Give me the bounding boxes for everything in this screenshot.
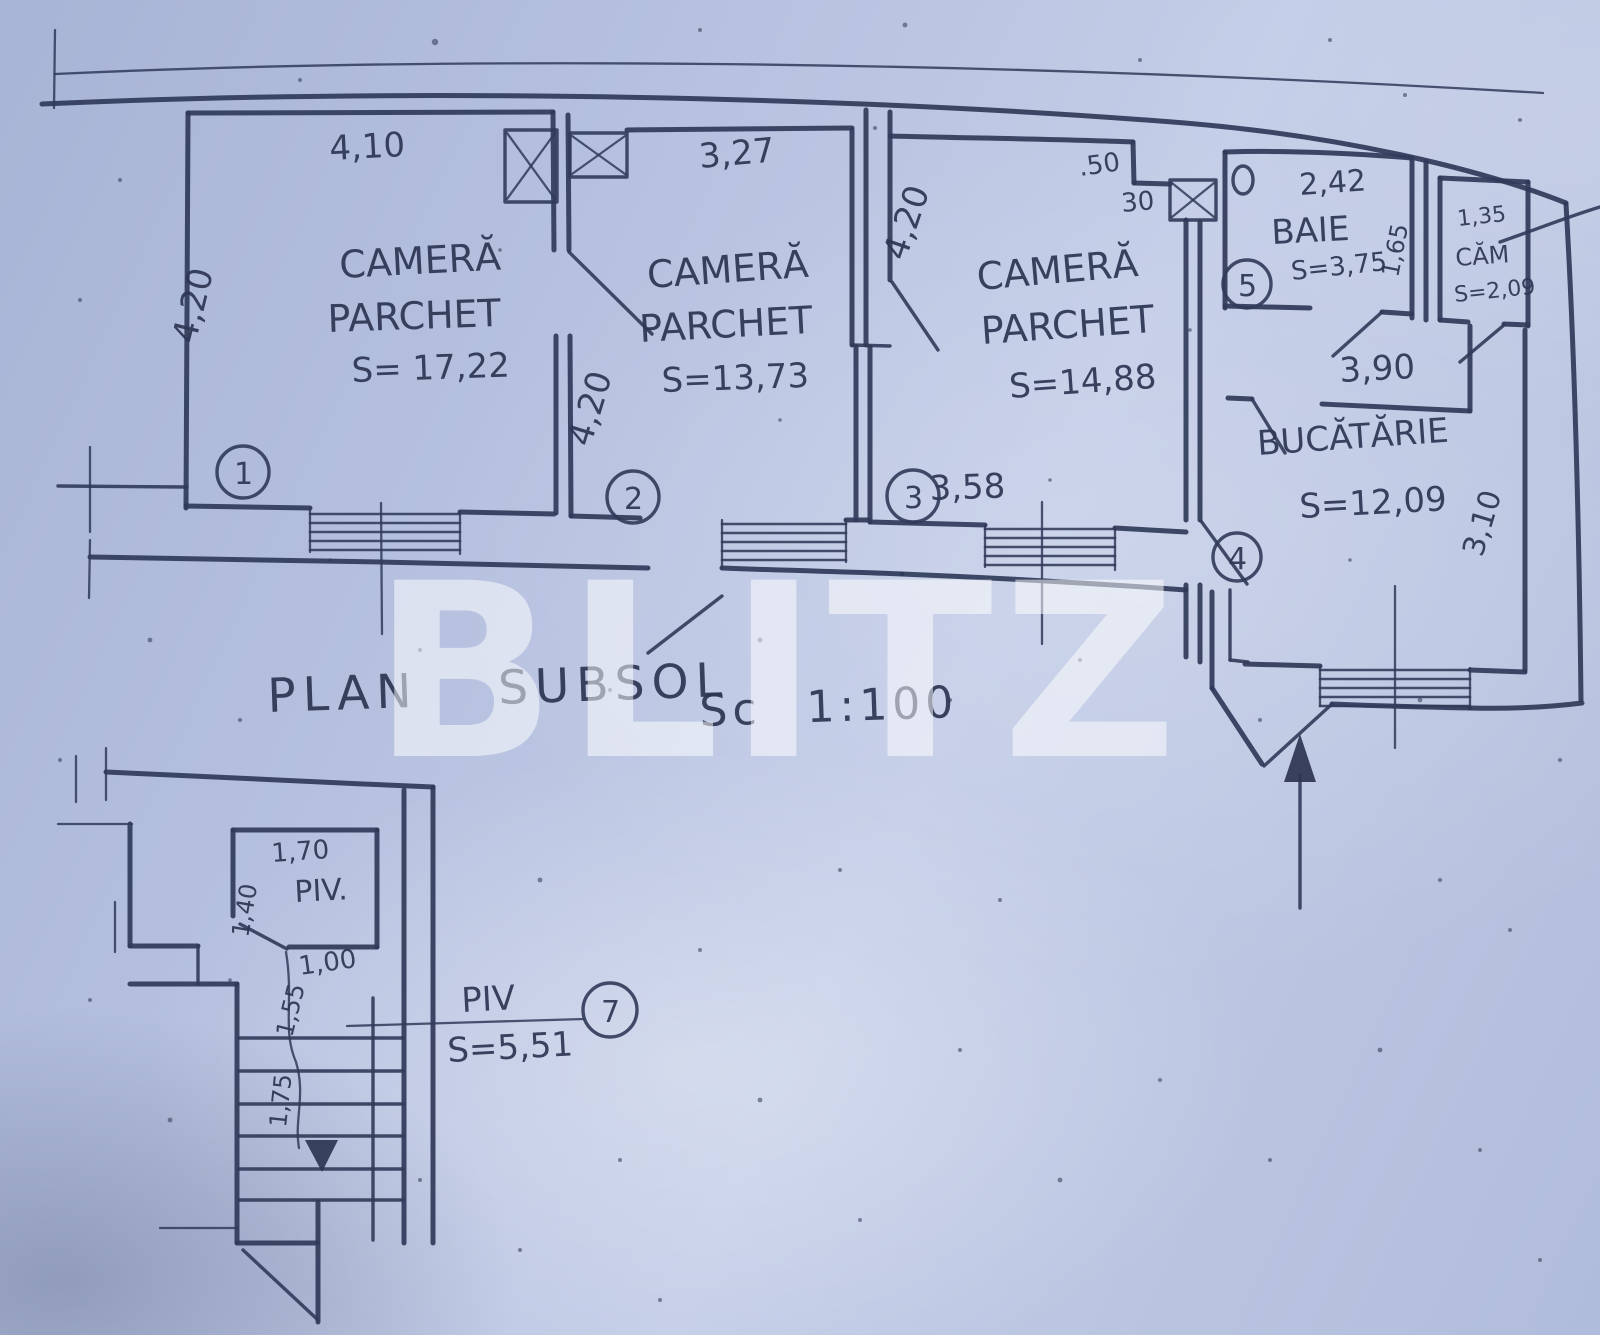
stair-treads bbox=[239, 1038, 403, 1200]
piv-room-label: PIV. bbox=[294, 872, 349, 910]
room1-room2-divider bbox=[553, 112, 652, 516]
door-swing-room3 bbox=[892, 282, 938, 350]
svg-text:4: 4 bbox=[1228, 542, 1247, 577]
dim-piv-top: 1,70 bbox=[270, 835, 330, 869]
svg-text:7: 7 bbox=[601, 995, 620, 1030]
bucatarie-number-badge: 4 bbox=[1213, 533, 1261, 581]
baie-number-badge: 5 bbox=[1223, 260, 1271, 308]
piv-callout-label: PIV bbox=[460, 978, 516, 1021]
bucatarie-area: S=12,09 bbox=[1298, 479, 1447, 527]
dim-hall: 3,90 bbox=[1338, 347, 1416, 391]
baie-area: S=3,75 bbox=[1290, 247, 1389, 287]
dim-room1-left: 4,20 bbox=[165, 264, 222, 347]
dim-baie-side: 1,65 bbox=[1376, 221, 1414, 279]
room3-label-2: PARCHET bbox=[980, 297, 1157, 353]
plan-scale: Sc 1:100 bbox=[699, 677, 960, 737]
floor-plan-drawing: 4,10 4,20 CAMERĂ PARCHET S= 17,22 3,27 4… bbox=[0, 0, 1600, 1335]
piv-area: S=5,51 bbox=[446, 1024, 574, 1071]
leader-line-cam bbox=[1500, 207, 1600, 242]
svg-text:2: 2 bbox=[624, 482, 643, 517]
stair-direction-marker bbox=[305, 1140, 338, 1172]
room2-number-badge: 2 bbox=[607, 471, 659, 523]
cam-label: CĂM bbox=[1454, 238, 1510, 272]
entrance-arrow bbox=[1284, 734, 1316, 908]
dim-room2-right: 4,20 bbox=[876, 180, 938, 265]
dim-cam-top: 1,35 bbox=[1456, 202, 1507, 232]
dim-room3-step-b: 30 bbox=[1120, 186, 1156, 219]
scanned-floor-plan-photo: 4,10 4,20 CAMERĂ PARCHET S= 17,22 3,27 4… bbox=[0, 0, 1600, 1335]
plan-title: PLAN SUBSOL bbox=[266, 653, 729, 724]
dim-room2-top: 3,27 bbox=[697, 131, 776, 177]
room2-label-2: PARCHET bbox=[638, 298, 814, 351]
dim-bucatarie-right: 3,10 bbox=[1456, 486, 1509, 560]
room2-area: S=13,73 bbox=[661, 356, 810, 401]
dim-room3-bottom: 3,58 bbox=[929, 466, 1006, 509]
exterior-door-swing bbox=[648, 596, 722, 653]
room3-label-1: CAMERĂ bbox=[975, 240, 1140, 299]
dim-piv-door: 1,00 bbox=[297, 944, 359, 982]
cam-area: S=2,09 bbox=[1453, 275, 1537, 308]
room3-window-hatch bbox=[985, 529, 1115, 565]
stair-bottom-door-swing bbox=[243, 1250, 318, 1320]
baie-label: BAIE bbox=[1270, 209, 1350, 253]
dim-room3-step-a: .50 bbox=[1077, 147, 1122, 182]
svg-text:1: 1 bbox=[234, 457, 253, 492]
room1-area: S= 17,22 bbox=[351, 345, 511, 390]
svg-text:3: 3 bbox=[904, 481, 923, 516]
room1-number-badge: 1 bbox=[217, 446, 269, 498]
dim-room1-top: 4,10 bbox=[328, 125, 406, 169]
dim-baie-top: 2,42 bbox=[1298, 163, 1367, 203]
dim-stair-b: 1,75 bbox=[264, 1073, 297, 1129]
door-swing-cam bbox=[1460, 325, 1504, 362]
bucatarie-label: BUCĂTĂRIE bbox=[1256, 410, 1450, 464]
baie-fixture-symbol bbox=[1233, 166, 1253, 194]
piv-number-badge: 7 bbox=[583, 983, 637, 1037]
room1-label-2: PARCHET bbox=[327, 291, 503, 341]
room1-window-hatch bbox=[310, 514, 460, 550]
room3-area: S=14,88 bbox=[1008, 357, 1158, 407]
building-right-outline bbox=[1566, 204, 1581, 700]
room2-window-hatch bbox=[722, 524, 846, 560]
room1-label-1: CAMERĂ bbox=[338, 234, 502, 287]
svg-text:5: 5 bbox=[1238, 269, 1257, 304]
room2-label-1: CAMERĂ bbox=[645, 241, 809, 297]
dim-stair-a: 1,55 bbox=[271, 981, 311, 1040]
